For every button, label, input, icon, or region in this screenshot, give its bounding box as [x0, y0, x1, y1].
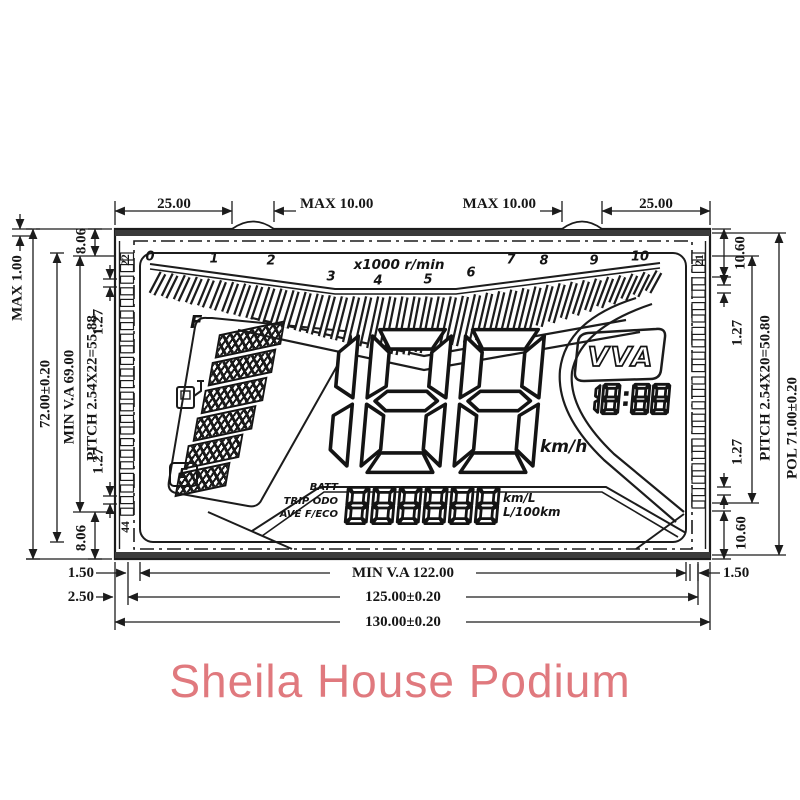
- dim-bottom-va: MIN V.A 122.00: [330, 565, 476, 582]
- dim-bottom-pol: 125.00±0.20: [340, 589, 466, 606]
- pin-number-bottom-left: 44: [120, 521, 132, 533]
- dim-right-gap-bottom: 10.60: [734, 516, 751, 550]
- tach-tick-8: 8: [539, 254, 548, 269]
- dim-right-pol: POL 71.00±0.20: [785, 377, 800, 479]
- dim-bottom-outer: 130.00±0.20: [340, 614, 466, 631]
- dim-top-tab-right: MAX 10.00: [450, 196, 536, 213]
- odometer-display: [344, 487, 500, 529]
- dim-top-left: 25.00: [133, 196, 215, 213]
- lcd-dimensional-drawing: VVA: [0, 0, 800, 800]
- vva-logo: VVA: [588, 342, 655, 373]
- dim-top-right: 25.00: [614, 196, 698, 213]
- dim-right-pitch: PITCH 2.54X20=50.80: [758, 315, 775, 461]
- batt-label: BATT: [236, 481, 338, 495]
- tach-tick-0: 0: [145, 250, 154, 265]
- unit-l100-label: L/100km: [503, 505, 561, 519]
- dim-left-height: 72.00±0.20: [38, 360, 55, 428]
- tach-tick-6: 6: [466, 266, 475, 281]
- dim-right-half-bottom: 1.27: [730, 439, 747, 465]
- dim-bottom-left-inset1: 1.50: [54, 565, 94, 582]
- dim-right-gap-top: 10.60: [733, 236, 750, 270]
- dim-right-half-top: 1.27: [730, 320, 747, 346]
- ave-feco-label: AVE F/ECO: [236, 508, 338, 522]
- tach-tick-7: 7: [506, 253, 515, 268]
- dim-right-inset: 1.50: [723, 565, 749, 582]
- clock-display: [580, 384, 670, 419]
- pin-number-top-left: 22: [120, 254, 132, 266]
- dim-top-tab-left: MAX 10.00: [300, 196, 373, 213]
- dim-left-max: MAX 1.00: [10, 255, 27, 321]
- fuel-full-label: F: [190, 312, 202, 333]
- tach-tick-4: 4: [373, 274, 382, 289]
- unit-kml-label: km/L: [503, 491, 536, 505]
- speed-unit-label: km/h: [540, 437, 587, 457]
- tach-tick-9: 9: [589, 254, 598, 269]
- dim-bottom-left-inset2: 2.50: [54, 589, 94, 606]
- tach-unit-label: x1000 r/min: [354, 257, 445, 273]
- tach-tick-10: 10: [631, 250, 649, 265]
- dim-left-gap-bottom: 8.06: [74, 525, 91, 551]
- brand-title: Sheila House Podium: [0, 654, 800, 708]
- dim-left-half-bottom: 1.27: [91, 448, 108, 474]
- speed-display: [265, 328, 546, 479]
- tach-tick-5: 5: [423, 273, 432, 288]
- dim-left-va: MIN V.A 69.00: [62, 350, 79, 444]
- info-labels: BATT TRIP ODO AVE F/ECO: [236, 481, 338, 522]
- pin-number-top-right: 21: [694, 254, 706, 266]
- tach-tick-3: 3: [326, 270, 335, 285]
- tach-tick-1: 1: [209, 252, 218, 267]
- dim-left-pitch: PITCH 2.54X22=55.88: [85, 315, 102, 461]
- tach-tick-2: 2: [266, 254, 275, 269]
- dim-left-half-top: 1.27: [91, 309, 108, 335]
- trip-odo-label: TRIP ODO: [236, 495, 338, 509]
- dim-left-gap-top: 8.06: [74, 228, 91, 254]
